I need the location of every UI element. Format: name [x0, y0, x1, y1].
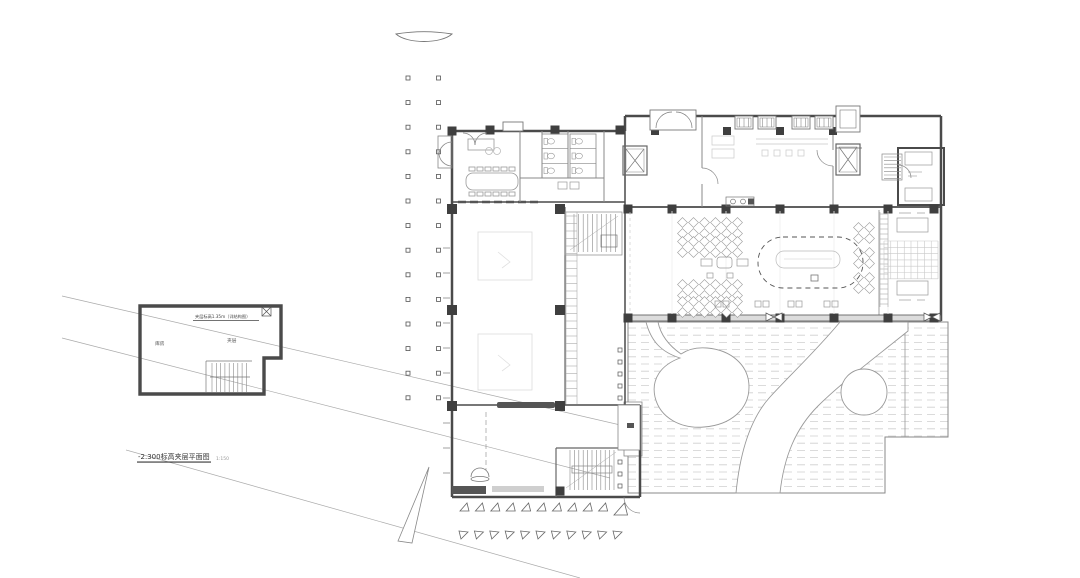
walls	[452, 116, 944, 497]
entry-bay	[650, 110, 696, 130]
left-wing-bay	[503, 122, 523, 131]
main-floor-plan	[438, 106, 948, 513]
mezzanine-shaft	[262, 307, 271, 316]
plan-title-underline	[137, 462, 211, 463]
elevators	[623, 144, 860, 175]
plan-title-block: -2.300标高夹层平面图 1:150	[137, 452, 229, 463]
mezzanine-note: 夹层标高1.35m（详结构图）	[195, 313, 250, 320]
terrace-circle-feature	[841, 369, 887, 415]
site-marker-triangles	[459, 503, 628, 539]
northeast-room-beds	[905, 152, 932, 201]
drawing-canvas: 夹层标高1.35m（详结构图） 库房 夹层 -2.300标高夹层平面图 1:15…	[0, 0, 1080, 578]
terrace-blob-planter	[646, 322, 749, 427]
north-wing-furniture	[712, 136, 828, 158]
mezzanine-stair	[206, 361, 252, 393]
hall	[630, 211, 940, 321]
mezzanine-room-left-label: 库房	[155, 340, 165, 347]
sinks	[558, 182, 579, 189]
left-wing	[443, 212, 577, 473]
west-entrance	[438, 133, 487, 168]
site-pointer-spire	[398, 467, 429, 543]
conference-room	[466, 139, 518, 196]
colonnade-top-chevron	[396, 32, 452, 42]
toilet-stalls	[542, 134, 596, 178]
hall-table-clusters	[678, 218, 875, 318]
mezzanine-room-right-label: 夹层	[227, 337, 237, 344]
lintel	[497, 402, 555, 408]
podium	[471, 468, 489, 482]
terrace	[618, 322, 948, 493]
stair-south	[570, 450, 614, 490]
atrium-opening	[758, 237, 863, 288]
wing-door-arcs	[702, 150, 911, 184]
floor-plan-svg: 夹层标高1.35m（详结构图） 库房 夹层 -2.300标高夹层平面图 1:15…	[0, 0, 1080, 578]
tree-colonnade	[396, 32, 452, 400]
hall-right-zone	[880, 212, 938, 307]
plan-title: -2.300标高夹层平面图	[138, 452, 210, 461]
hall-sofa-group	[701, 257, 748, 278]
plan-scale: 1:150	[216, 456, 229, 462]
